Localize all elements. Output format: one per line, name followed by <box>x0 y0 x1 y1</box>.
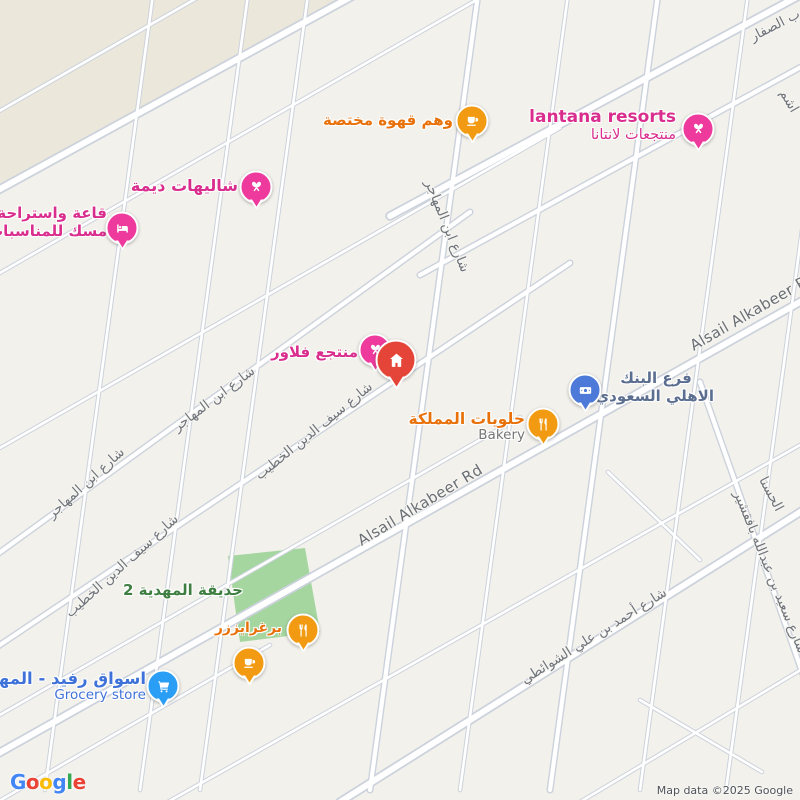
poi-title: شاليهات ديمة <box>131 177 238 196</box>
bed-icon <box>114 220 130 236</box>
poi-label-dima-chalets[interactable]: شاليهات ديمة <box>131 177 238 196</box>
google-logo-letter: G <box>10 770 26 794</box>
poi-line1: قاعة واستراحة <box>0 205 107 223</box>
pin-burger[interactable] <box>287 614 320 647</box>
poi-subtitle: Grocery store <box>0 688 146 704</box>
pin-waham-coffee[interactable] <box>456 105 489 138</box>
poi-label-waham-coffee[interactable]: وهم قهوة مختصة <box>323 112 453 130</box>
map-attribution: Map data ©2025 Google <box>657 784 793 797</box>
poi-label-lantana-resorts[interactable]: lantana resorts منتجعات لانتانا <box>529 107 676 144</box>
poi-label-burger[interactable]: برغرايززر <box>215 620 282 637</box>
resort-icon <box>248 179 264 195</box>
poi-line2: مسك للمناسبات <box>0 223 107 241</box>
poi-title: lantana resorts <box>529 107 676 127</box>
poi-title: حديقة المهدية 2 <box>123 582 243 600</box>
poi-title: حلويات المملكة <box>409 410 526 428</box>
poi-line1: فرع البنك <box>598 370 714 388</box>
poi-title: اسواق رفيد - المهدية <box>0 669 146 688</box>
poi-subtitle: Bakery <box>409 428 526 444</box>
poi-label-misk-hall[interactable]: قاعة واستراحة مسك للمناسبات <box>0 205 107 240</box>
bank-icon <box>577 382 593 398</box>
poi-subtitle: منتجعات لانتانا <box>529 127 676 144</box>
poi-title: برغرايززر <box>215 620 282 637</box>
pin-bank[interactable] <box>569 374 602 407</box>
poi-title: منتجع فلاور <box>271 344 358 362</box>
pin-selected-home[interactable] <box>376 340 417 381</box>
home-icon <box>385 349 407 371</box>
pin-coffee-shop[interactable] <box>233 647 266 680</box>
coffee-icon <box>241 655 257 671</box>
pin-bakery[interactable] <box>527 408 560 441</box>
poi-label-bakery[interactable]: حلويات المملكة Bakery <box>409 410 526 444</box>
google-logo[interactable]: Google <box>10 770 86 794</box>
google-logo-letter: o <box>39 770 52 794</box>
poi-label-bank[interactable]: فرع البنك الاهلي السعودي <box>598 370 714 405</box>
pin-lantana-resorts[interactable] <box>682 113 715 146</box>
cart-icon <box>155 678 171 694</box>
map-canvas[interactable]: Alsail Alkabeer Rd Alsail Alkabeer Rd شا… <box>0 0 800 800</box>
pin-misk-hall[interactable] <box>106 212 139 245</box>
coffee-icon <box>464 113 480 129</box>
poi-label-flower-resort[interactable]: منتجع فلاور <box>271 344 358 362</box>
restaurant-icon <box>535 416 551 432</box>
google-logo-letter: e <box>73 770 86 794</box>
poi-label-grocery[interactable]: اسواق رفيد - المهدية Grocery store <box>0 669 146 704</box>
pin-dima-chalets[interactable] <box>240 171 273 204</box>
pin-grocery[interactable] <box>147 670 180 703</box>
resort-icon <box>690 121 706 137</box>
poi-label-park[interactable]: حديقة المهدية 2 <box>123 582 243 600</box>
google-logo-letter: o <box>26 770 39 794</box>
poi-line2: الاهلي السعودي <box>598 388 714 406</box>
google-logo-letter: g <box>52 770 66 794</box>
poi-title: وهم قهوة مختصة <box>323 112 453 130</box>
restaurant-icon <box>295 622 311 638</box>
